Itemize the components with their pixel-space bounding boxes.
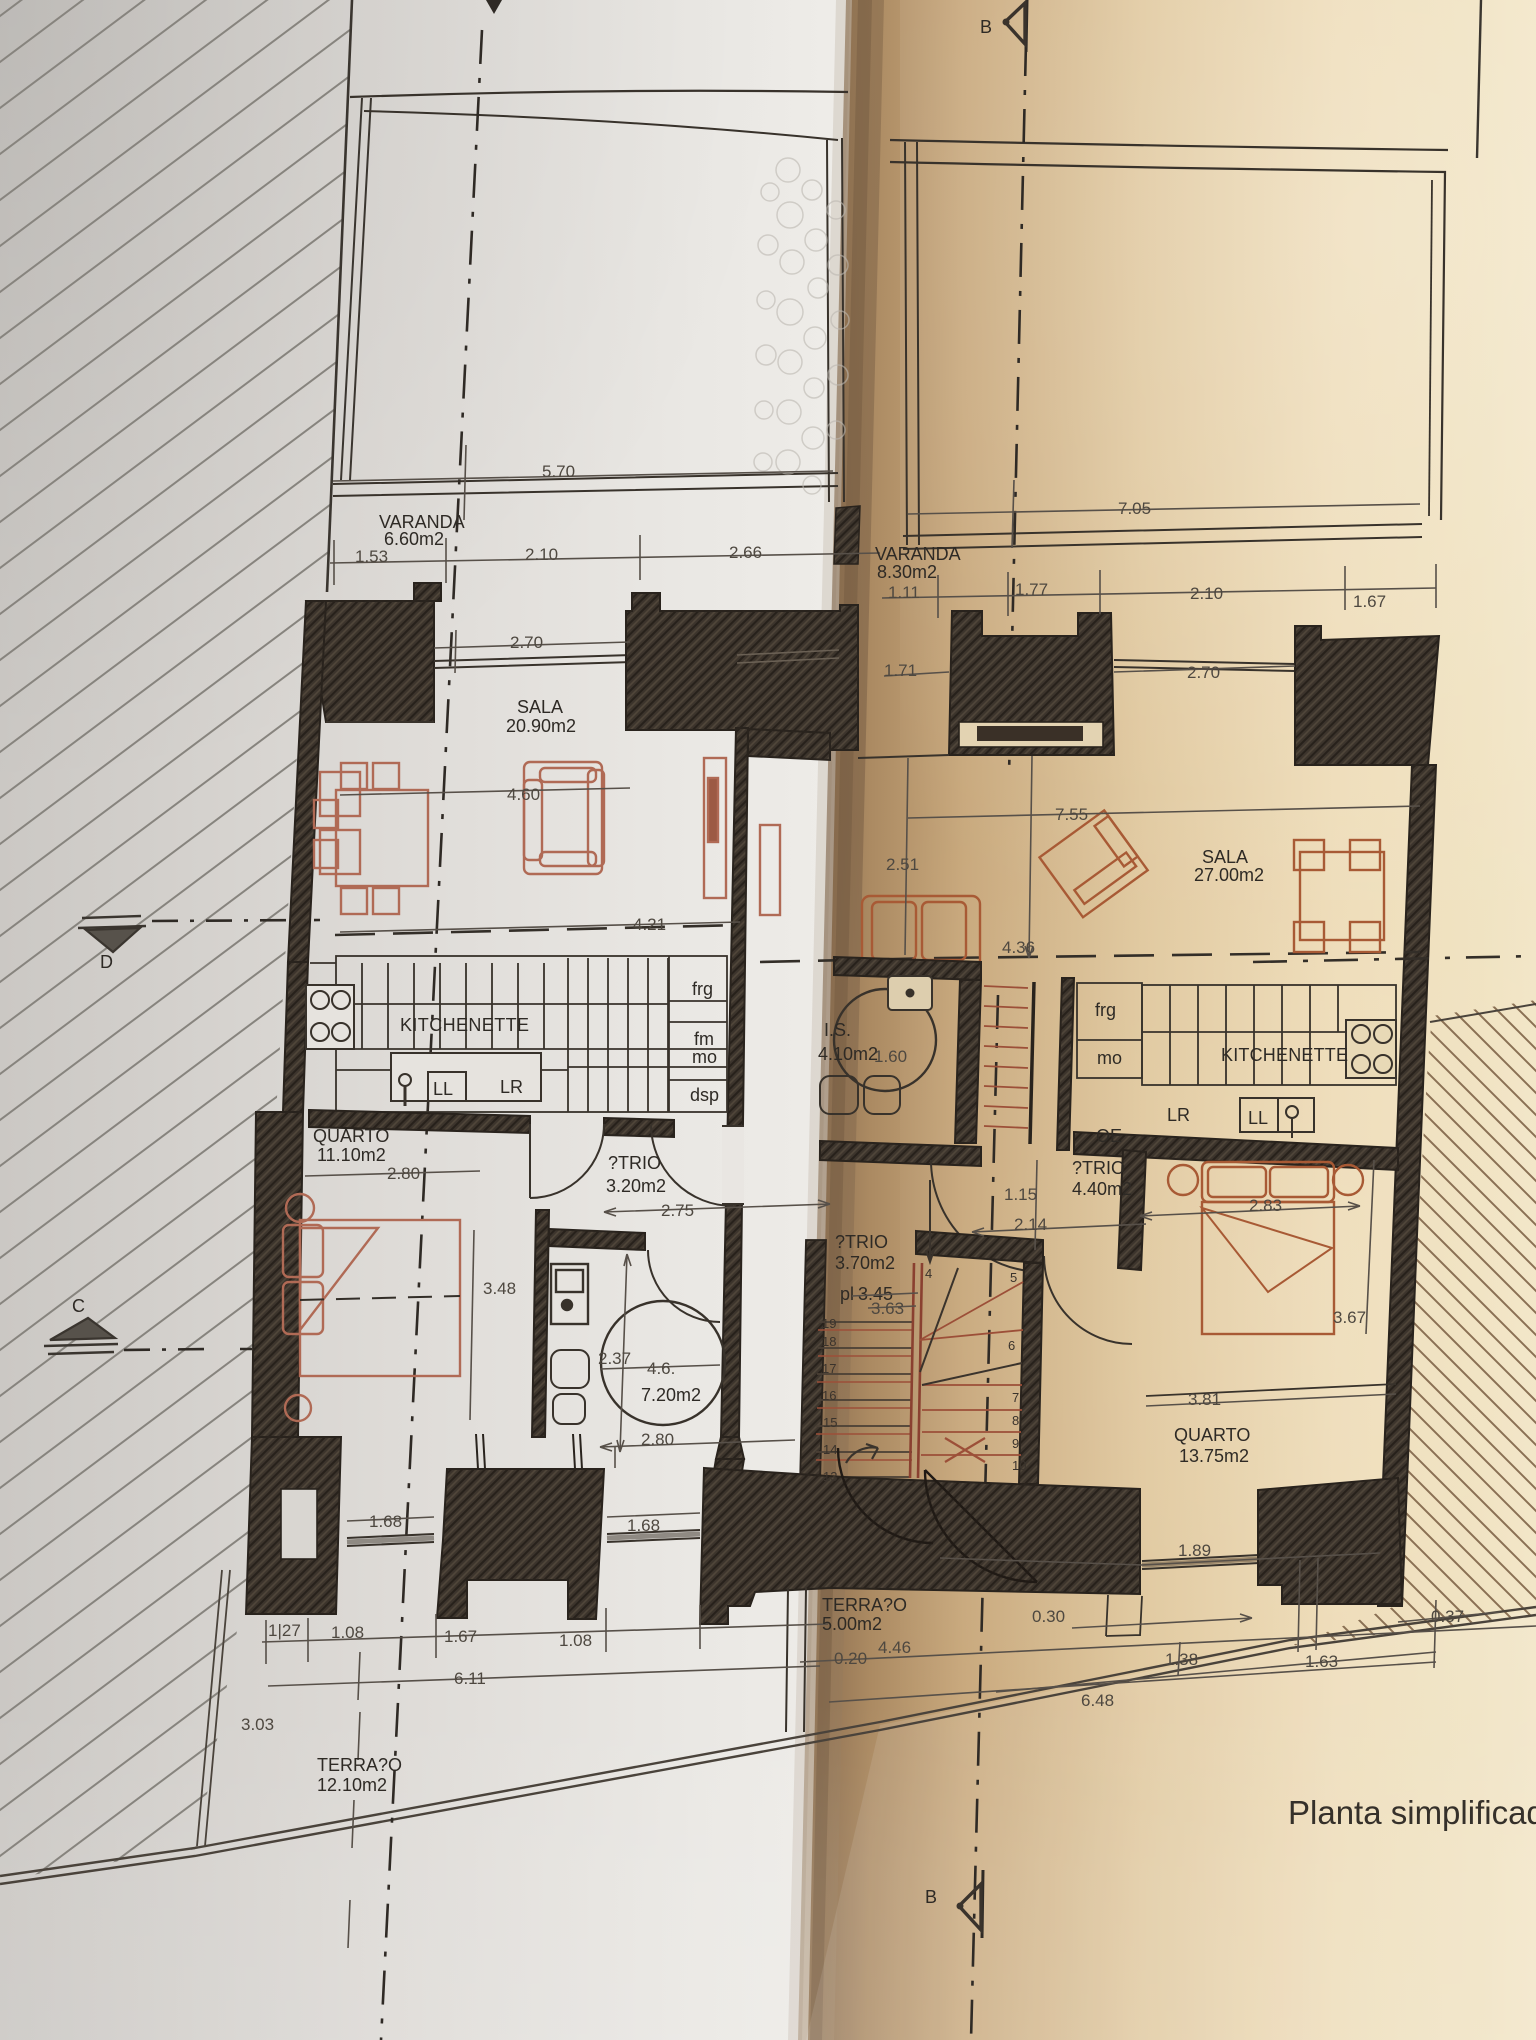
svg-text:LL: LL: [433, 1079, 453, 1099]
svg-text:4: 4: [925, 1266, 932, 1281]
svg-text:SALA: SALA: [517, 697, 563, 717]
svg-text:OE: OE: [1096, 1126, 1122, 1146]
svg-text:LR: LR: [500, 1077, 523, 1097]
svg-text:1.89: 1.89: [1178, 1541, 1211, 1560]
svg-text:1.08: 1.08: [559, 1631, 592, 1650]
svg-text:6.60m2: 6.60m2: [384, 529, 444, 549]
svg-text:4.10m2: 4.10m2: [818, 1044, 878, 1064]
svg-text:?TRIO: ?TRIO: [835, 1232, 888, 1252]
svg-text:LL: LL: [1248, 1108, 1268, 1128]
svg-text:B: B: [925, 1887, 937, 1907]
svg-text:7.20m2: 7.20m2: [641, 1385, 701, 1405]
svg-text:1.15: 1.15: [1004, 1185, 1037, 1204]
svg-text:frg: frg: [692, 979, 713, 999]
svg-text:3.70m2: 3.70m2: [835, 1253, 895, 1273]
svg-text:2.51: 2.51: [886, 855, 919, 874]
svg-text:1.38: 1.38: [1165, 1650, 1198, 1669]
svg-text:dsp: dsp: [690, 1085, 719, 1105]
svg-text:6.48: 6.48: [1081, 1691, 1114, 1710]
svg-text:mo: mo: [692, 1047, 717, 1067]
svg-text:12.10m2: 12.10m2: [317, 1775, 387, 1795]
svg-text:SALA: SALA: [1202, 847, 1248, 867]
svg-text:10: 10: [1012, 1458, 1026, 1473]
svg-text:mo: mo: [1097, 1048, 1122, 1068]
svg-text:QUARTO: QUARTO: [313, 1126, 389, 1146]
svg-text:3.48: 3.48: [483, 1279, 516, 1298]
svg-text:TERRA?O: TERRA?O: [317, 1755, 402, 1775]
svg-text:15: 15: [823, 1415, 837, 1430]
svg-text:4.36: 4.36: [1002, 938, 1035, 957]
svg-text:KITCHENETTE: KITCHENETTE: [1221, 1045, 1348, 1065]
svg-text:7.55: 7.55: [1055, 805, 1088, 824]
svg-text:3.67: 3.67: [1333, 1308, 1366, 1327]
svg-text:?TRIO: ?TRIO: [1072, 1158, 1125, 1178]
svg-text:14: 14: [823, 1442, 837, 1457]
svg-text:3.63: 3.63: [871, 1299, 904, 1318]
svg-text:13: 13: [823, 1469, 837, 1484]
svg-text:4.60: 4.60: [507, 785, 540, 804]
svg-text:1|27: 1|27: [268, 1621, 301, 1640]
svg-text:4.6.: 4.6.: [647, 1359, 675, 1378]
svg-text:2.10: 2.10: [1190, 584, 1223, 603]
svg-text:frg: frg: [1095, 1000, 1116, 1020]
svg-text:17: 17: [822, 1361, 836, 1376]
svg-text:VARANDA: VARANDA: [875, 544, 961, 564]
svg-text:Planta simplificada d: Planta simplificada d: [1288, 1794, 1536, 1831]
svg-text:3.20m2: 3.20m2: [606, 1176, 666, 1196]
svg-text:1.68: 1.68: [627, 1516, 660, 1535]
svg-text:2.66: 2.66: [729, 543, 762, 562]
svg-text:1.67: 1.67: [444, 1627, 477, 1646]
svg-text:KITCHENETTE: KITCHENETTE: [400, 1015, 529, 1035]
svg-text:18: 18: [822, 1334, 836, 1349]
svg-text:3.03: 3.03: [241, 1715, 274, 1734]
svg-text:0.30: 0.30: [1032, 1607, 1065, 1626]
svg-text:4.21: 4.21: [633, 915, 666, 934]
svg-text:8.30m2: 8.30m2: [877, 562, 937, 582]
svg-text:1.60: 1.60: [874, 1047, 907, 1066]
svg-text:13.75m2: 13.75m2: [1179, 1446, 1249, 1466]
svg-text:2.80: 2.80: [641, 1430, 674, 1449]
svg-text:1.11: 1.11: [888, 583, 920, 602]
svg-text:2.70: 2.70: [510, 633, 543, 652]
svg-text:?TRIO: ?TRIO: [608, 1153, 661, 1173]
svg-text:5.00m2: 5.00m2: [822, 1614, 882, 1634]
svg-text:2.70: 2.70: [1187, 663, 1220, 682]
svg-text:9: 9: [1012, 1436, 1019, 1451]
svg-text:2.75: 2.75: [661, 1201, 694, 1220]
svg-text:4.40m2: 4.40m2: [1072, 1179, 1132, 1199]
svg-text:6: 6: [1008, 1338, 1015, 1353]
svg-text:5: 5: [1010, 1270, 1017, 1285]
svg-text:1.08: 1.08: [331, 1623, 364, 1642]
svg-text:2.80: 2.80: [387, 1164, 420, 1183]
svg-text:8: 8: [1012, 1413, 1019, 1428]
svg-text:2.14: 2.14: [1014, 1215, 1047, 1234]
svg-text:2.37: 2.37: [598, 1349, 631, 1368]
svg-text:0.20: 0.20: [834, 1649, 867, 1668]
svg-text:C: C: [72, 1296, 85, 1316]
svg-text:7: 7: [1012, 1390, 1019, 1405]
svg-text:1.77: 1.77: [1015, 580, 1048, 599]
svg-text:16: 16: [822, 1388, 836, 1403]
svg-text:4.46: 4.46: [878, 1638, 911, 1657]
svg-text:QUARTO: QUARTO: [1174, 1425, 1250, 1445]
svg-text:2.10: 2.10: [525, 545, 558, 564]
svg-text:27.00m2: 27.00m2: [1194, 865, 1264, 885]
svg-text:B: B: [980, 17, 992, 37]
svg-text:fm: fm: [694, 1029, 714, 1049]
svg-text:20.90m2: 20.90m2: [506, 716, 576, 736]
svg-text:3.81: 3.81: [1188, 1390, 1221, 1409]
svg-text:5.70: 5.70: [542, 462, 575, 481]
svg-text:6.11: 6.11: [454, 1669, 486, 1688]
svg-text:I.S.: I.S.: [824, 1020, 851, 1040]
svg-text:1.63: 1.63: [1305, 1652, 1338, 1671]
svg-text:1.53: 1.53: [355, 547, 388, 566]
svg-text:pl: pl: [840, 1284, 854, 1304]
svg-text:1.67: 1.67: [1353, 592, 1386, 611]
svg-text:1.68: 1.68: [369, 1512, 402, 1531]
svg-text:LR: LR: [1167, 1105, 1190, 1125]
svg-text:7.05: 7.05: [1118, 499, 1151, 518]
svg-text:2.83: 2.83: [1249, 1196, 1282, 1215]
svg-text:19: 19: [822, 1316, 836, 1331]
svg-text:TERRA?O: TERRA?O: [822, 1595, 907, 1615]
svg-text:0.37: 0.37: [1431, 1607, 1464, 1626]
svg-text:D: D: [100, 952, 113, 972]
svg-text:11.10m2: 11.10m2: [317, 1145, 386, 1165]
svg-text:1.71: 1.71: [884, 661, 917, 680]
